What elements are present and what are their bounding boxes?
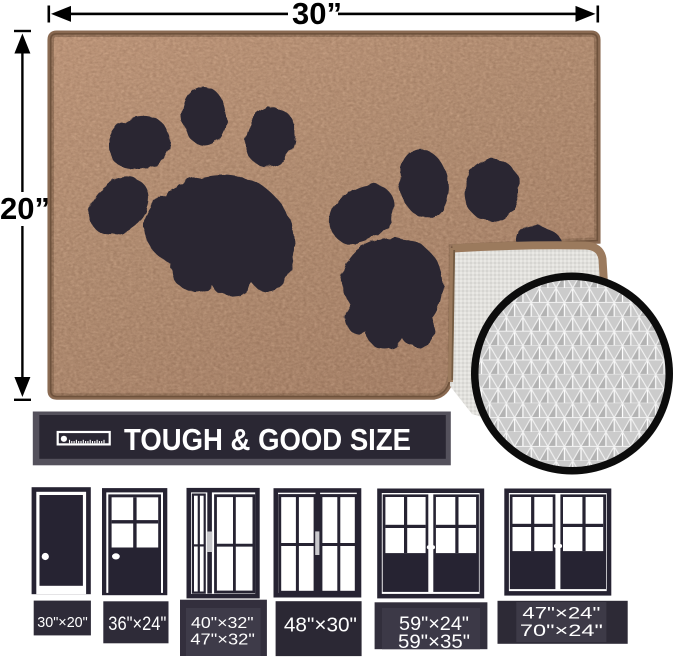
svg-text:20”: 20” bbox=[0, 191, 50, 226]
svg-text:47"×24": 47"×24" bbox=[522, 604, 600, 623]
svg-text:59"×35": 59"×35" bbox=[398, 632, 470, 653]
svg-text:36"×24": 36"×24" bbox=[108, 614, 166, 635]
svg-text:TOUGH & GOOD SIZE: TOUGH & GOOD SIZE bbox=[124, 422, 411, 457]
svg-text:48"×30": 48"×30" bbox=[284, 614, 357, 636]
svg-text:40"×32": 40"×32" bbox=[191, 615, 254, 632]
svg-text:30”: 30” bbox=[292, 0, 342, 31]
svg-text:30"×20": 30"×20" bbox=[37, 614, 88, 631]
svg-text:70"×24": 70"×24" bbox=[520, 621, 603, 640]
svg-text:47"×32": 47"×32" bbox=[190, 632, 255, 649]
